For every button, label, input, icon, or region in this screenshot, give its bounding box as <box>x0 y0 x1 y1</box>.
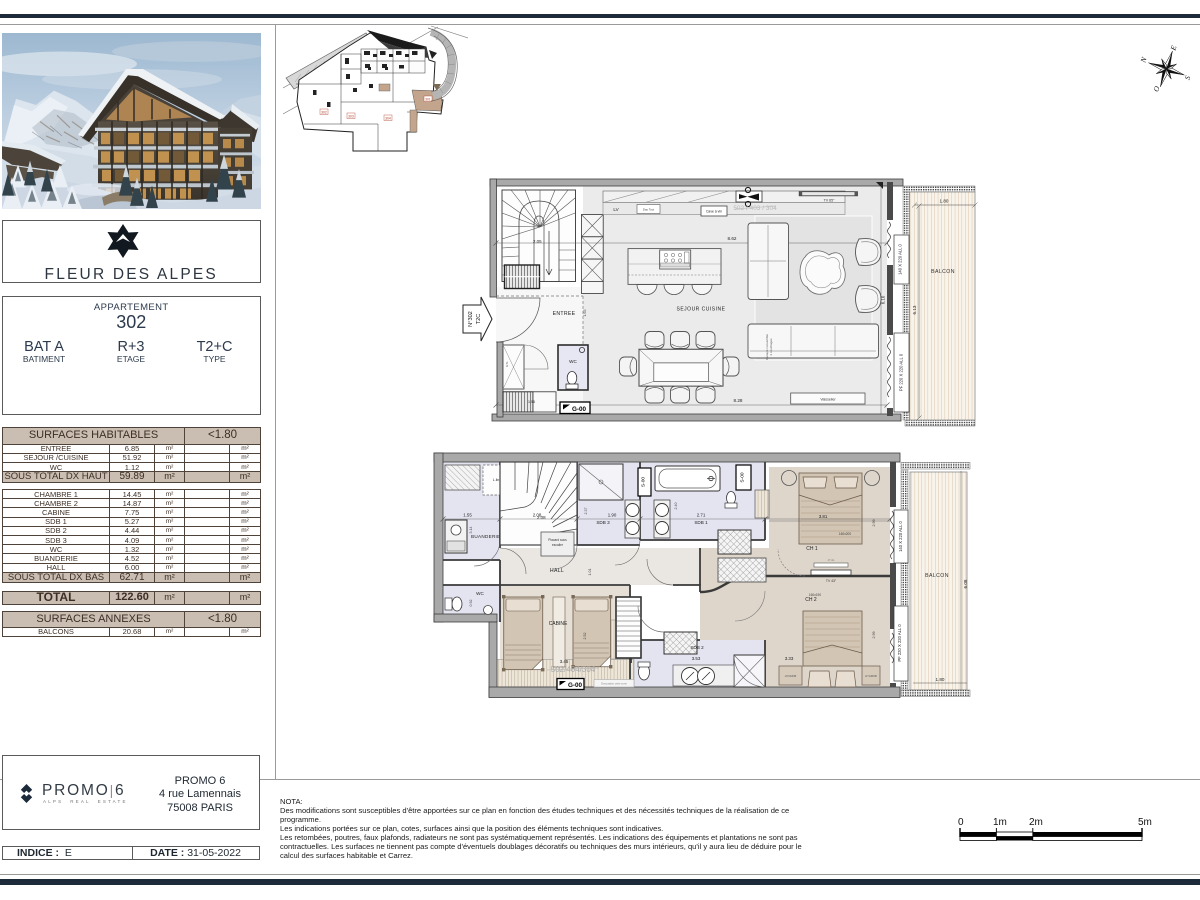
svg-text:GTL: GTL <box>505 361 509 367</box>
svg-text:6.08: 6.08 <box>963 579 968 588</box>
svg-text:301: 301 <box>425 98 431 102</box>
svg-text:Vaisselier: Vaisselier <box>820 397 836 401</box>
svg-text:3.45: 3.45 <box>560 659 569 664</box>
svg-text:CABINE: CABINE <box>549 621 568 627</box>
svg-text:SDB 1: SDB 1 <box>694 520 708 525</box>
svg-text:303: 303 <box>348 115 354 119</box>
svg-text:140 X 220 ALL 0: 140 X 220 ALL 0 <box>898 520 903 551</box>
svg-text:2.08: 2.08 <box>533 513 542 518</box>
svg-text:S-00: S-00 <box>740 472 746 482</box>
svg-text:1.01: 1.01 <box>588 569 592 576</box>
svg-text:ENTREE: ENTREE <box>553 311 576 317</box>
svg-text:CH 1: CH 1 <box>806 546 818 552</box>
svg-text:3.81: 3.81 <box>819 514 828 519</box>
svg-text:2.40: 2.40 <box>674 503 678 510</box>
svg-text:6.13: 6.13 <box>912 305 917 314</box>
svg-text:BALCON: BALCON <box>925 573 949 579</box>
svg-text:TV 65": TV 65" <box>824 199 836 203</box>
svg-text:WC: WC <box>476 591 484 596</box>
svg-text:1.80: 1.80 <box>936 677 945 682</box>
svg-text:140 X 220 ALL 0: 140 X 220 ALL 0 <box>898 243 903 274</box>
svg-text:1.80: 1.80 <box>940 199 949 204</box>
svg-text:302: 302 <box>321 111 327 115</box>
svg-text:WC: WC <box>569 359 577 364</box>
svg-text:Evacuation cette zone: Evacuation cette zone <box>601 682 627 686</box>
svg-text:SEJOUR CUISINE: SEJOUR CUISINE <box>677 307 726 313</box>
svg-text:0.92: 0.92 <box>469 600 473 607</box>
svg-text:CH 2: CH 2 <box>805 597 817 603</box>
svg-text:8.28: 8.28 <box>734 398 743 403</box>
svg-text:304: 304 <box>385 117 391 121</box>
svg-text:2m: 2m <box>1029 817 1043 828</box>
svg-text:N°302: N°302 <box>468 311 474 327</box>
svg-text:2.52: 2.52 <box>583 633 587 640</box>
svg-text:Placard sous: Placard sous <box>548 538 567 542</box>
svg-text:1.63: 1.63 <box>583 310 587 317</box>
svg-text:E: E <box>1168 44 1178 53</box>
svg-text:8.62: 8.62 <box>728 236 737 241</box>
svg-text:2 couchages: 2 couchages <box>769 338 773 356</box>
svg-text:O: O <box>1151 84 1161 93</box>
svg-text:TV 43": TV 43" <box>826 579 837 583</box>
svg-text:BUANDERIE: BUANDERIE <box>471 534 501 539</box>
svg-text:Dao Tout: Dao Tout <box>643 208 654 212</box>
svg-text:1.56: 1.56 <box>528 400 535 404</box>
svg-text:2.71: 2.71 <box>697 513 706 518</box>
svg-text:N: N <box>1138 55 1149 65</box>
svg-text:2.37: 2.37 <box>584 508 588 515</box>
svg-text:2.05: 2.05 <box>533 239 542 244</box>
svg-text:HYGMOB: HYGMOB <box>785 674 797 678</box>
svg-text:3.33: 3.33 <box>785 656 794 661</box>
svg-text:1.90: 1.90 <box>608 513 617 518</box>
svg-text:BALCON: BALCON <box>931 269 955 275</box>
svg-text:SDB 2: SDB 2 <box>690 645 704 650</box>
svg-text:G-00: G-00 <box>572 406 586 413</box>
svg-text:JY AL: JY AL <box>827 558 835 562</box>
svg-text:160x200: 160x200 <box>839 532 851 536</box>
svg-text:1.55: 1.55 <box>463 513 472 518</box>
svg-text:PF 220 X 220 ALL 0: PF 220 X 220 ALL 0 <box>897 624 902 662</box>
svg-text:1m: 1m <box>993 817 1007 828</box>
svg-text:0: 0 <box>958 817 964 828</box>
svg-text:HYGMOB: HYGMOB <box>865 674 877 678</box>
svg-text:3.14: 3.14 <box>469 527 473 534</box>
svg-text:5m: 5m <box>1138 817 1152 828</box>
svg-text:PF 220 X 220 ALL 0: PF 220 X 220 ALL 0 <box>899 353 904 391</box>
svg-text:S: S <box>1183 74 1193 81</box>
svg-text:escalier: escalier <box>552 543 564 547</box>
svg-text:G-00: G-00 <box>568 682 582 689</box>
svg-text:SDB 3: SDB 3 <box>596 520 610 525</box>
svg-text:Cave à vin: Cave à vin <box>706 210 722 214</box>
svg-text:2.99: 2.99 <box>872 632 876 639</box>
svg-text:T2C: T2C <box>476 314 482 325</box>
svg-text:2.99: 2.99 <box>872 520 876 527</box>
svg-text:3.53: 3.53 <box>692 656 701 661</box>
svg-text:S-00: S-00 <box>641 477 647 487</box>
svg-text:160x190: 160x190 <box>809 593 821 597</box>
